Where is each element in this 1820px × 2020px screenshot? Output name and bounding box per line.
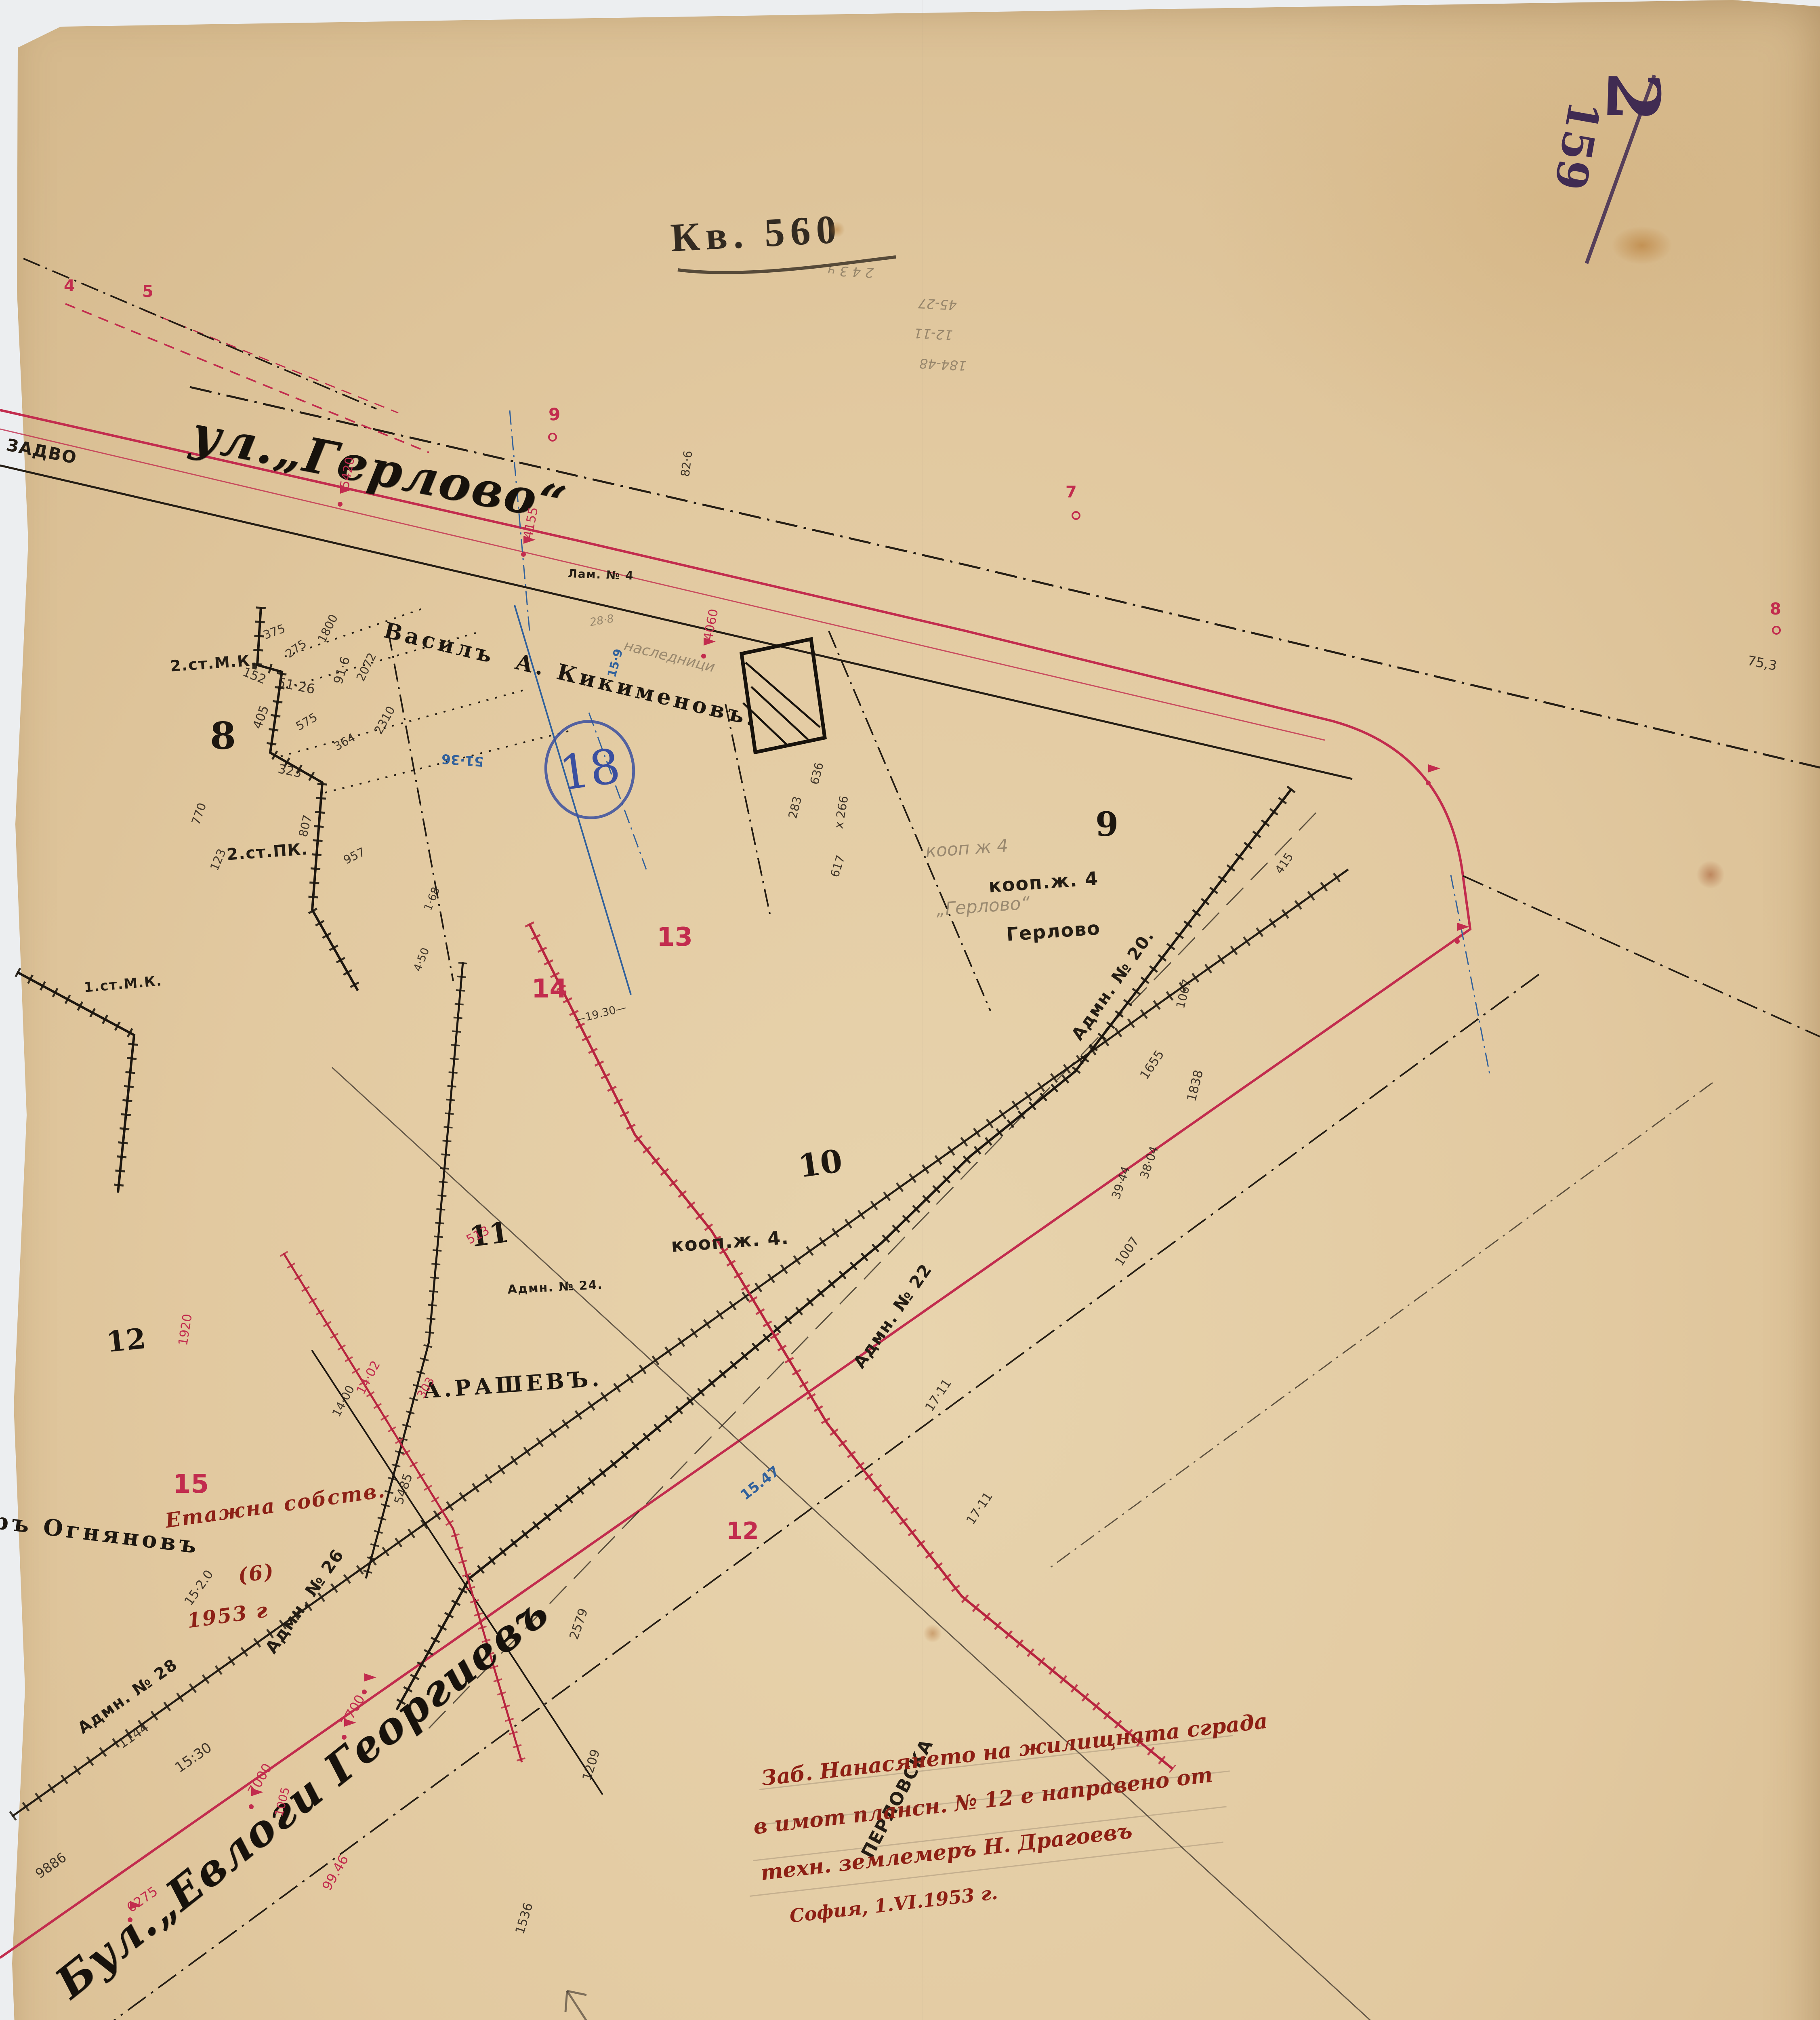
map-label: 45-27 (918, 297, 957, 312)
red-12b: 12 (726, 1519, 759, 1542)
map-label: 6 (548, 405, 561, 422)
map-label: 12-11 (914, 326, 953, 342)
map-label: 51·36 (441, 752, 484, 768)
map-label: 82·6 (679, 450, 694, 478)
map-label: 2 4 3 ч (827, 264, 874, 280)
circled-18-number: 18 (556, 742, 623, 797)
parcel-9: 9 (1095, 808, 1118, 841)
scanned-cadastral-sketch: ул.„Герлово“Бул.„Евлоги ГеоргиевъВасилъ … (0, 0, 1820, 2020)
map-label: 5 (142, 284, 153, 300)
parcel-12: 12 (105, 1324, 147, 1357)
lam4: Лам. № 4 (567, 568, 634, 582)
map-label: 184-48 (919, 357, 967, 372)
red-15: 15 (173, 1471, 209, 1497)
red-13: 13 (657, 924, 693, 950)
parcel-10: 10 (797, 1145, 844, 1183)
paper-sheet (0, 0, 1820, 2020)
map-label: 8 (1770, 601, 1781, 617)
block-title: Кв. 560 (669, 206, 843, 261)
parcel-8: 8 (210, 717, 236, 754)
paper-crease (922, 0, 923, 2020)
red-14: 14 (532, 976, 567, 1002)
map-label: 7 (1066, 484, 1077, 500)
etazhna-2: (6) (237, 1561, 276, 1586)
map-label: 4 (64, 278, 75, 294)
